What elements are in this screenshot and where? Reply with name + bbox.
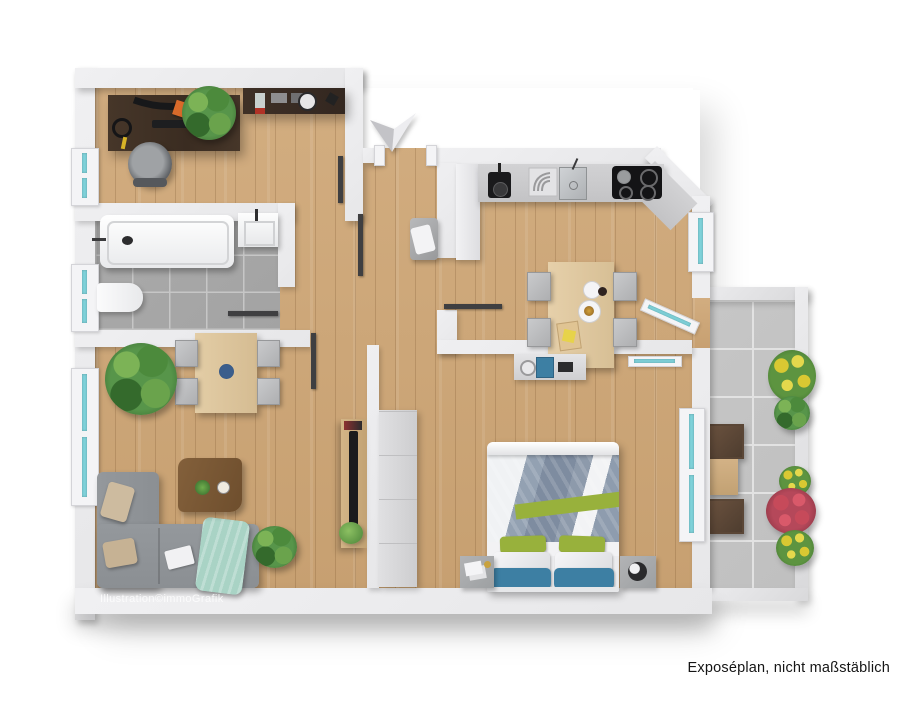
dining-cup — [598, 287, 607, 296]
bath-faucet — [92, 238, 106, 241]
tv-decor — [344, 421, 362, 430]
living-chair-2 — [175, 378, 198, 405]
watermark: Illustration©immoGrafik — [100, 593, 224, 605]
bed-headboard — [487, 587, 619, 592]
bedroom-door-leaf-flat — [628, 356, 682, 367]
balcony-chair-top — [706, 424, 744, 459]
sideboard-laptop — [558, 362, 573, 372]
wall-office-right — [345, 68, 363, 221]
balcony-rail-top — [700, 287, 808, 300]
bed-pillow-green-2 — [559, 535, 606, 554]
entrance-jamb-right — [426, 145, 437, 166]
dining-plate-2 — [578, 300, 601, 323]
office-chair-back — [133, 178, 167, 187]
kitchen-grill-handle — [498, 163, 501, 173]
living-chair-3 — [257, 340, 280, 367]
window-bedroom-glass — [689, 414, 694, 469]
kitchen-dishrack — [528, 167, 558, 197]
floorplan-canvas: Illustration©immoGrafik Exposéplan, nich… — [0, 0, 900, 701]
dining-napkin — [562, 329, 576, 343]
office-headphones — [112, 118, 132, 138]
office-shelf — [243, 88, 345, 114]
bathtub — [100, 215, 234, 268]
balcony-chair-bottom — [706, 499, 744, 534]
living-chair-4 — [257, 378, 280, 405]
nightstand-left — [460, 556, 494, 588]
wall-hall-kitchen-upper — [437, 163, 457, 258]
window-living-glass — [82, 374, 87, 431]
hall-chair-cloth — [410, 224, 436, 255]
balcony-flower-yellow-3 — [776, 530, 814, 566]
living-door-leaf — [311, 333, 316, 389]
dining-chair-1 — [527, 272, 551, 301]
wall-bathroom-right — [278, 203, 295, 287]
dining-chair-2 — [527, 318, 551, 347]
balcony-flowerpot-yellow — [768, 350, 816, 402]
coffee-table — [178, 458, 242, 512]
dining-chair-4 — [613, 318, 637, 347]
shelf-red-box — [255, 93, 265, 114]
kitchen-tall-cabinet — [456, 164, 480, 260]
kitchen-cooktop — [612, 166, 662, 199]
table-flowers — [219, 364, 234, 379]
sideboard-books — [536, 357, 554, 378]
shelf-decor — [325, 92, 339, 106]
wall-top-office — [75, 68, 363, 88]
bed-roll-top — [487, 442, 619, 455]
living-plant-large — [105, 343, 177, 415]
tv-screen — [349, 431, 358, 529]
window-office-glass — [82, 153, 87, 173]
balcony-flowerpot-red — [766, 488, 816, 534]
nightstand-papers — [464, 561, 483, 577]
caption: Exposéplan, nicht maßstäblich — [688, 660, 890, 676]
office-plant — [182, 86, 236, 140]
bath-sink-basin — [244, 221, 275, 246]
shelf-clock — [298, 92, 317, 111]
sideboard-tray — [520, 360, 536, 376]
nightstand-gold-dot — [484, 561, 491, 568]
window-bathroom-glass — [82, 270, 87, 294]
bath-sink-tap — [255, 209, 258, 221]
tv-plant — [339, 522, 363, 544]
shelf-books — [271, 93, 287, 103]
kitchen-sink — [559, 167, 587, 200]
dining-chair-3 — [613, 272, 637, 301]
dining-door-leaf — [444, 304, 502, 309]
window-bathroom-glass2 — [82, 299, 87, 323]
window-office-glass2 — [82, 178, 87, 198]
bed — [487, 442, 619, 592]
balcony-table — [708, 459, 738, 495]
hall-chair — [410, 218, 438, 260]
sofa-cushion-line — [158, 528, 160, 584]
bathtub-drain — [122, 236, 133, 245]
balcony-rail-bottom — [704, 588, 808, 601]
toilet — [97, 283, 143, 312]
coffee-table-plant — [195, 480, 210, 495]
hall-coat-rack — [358, 214, 363, 276]
wall-kitchen-top — [435, 148, 661, 164]
burner-4 — [640, 185, 656, 201]
bathroom-shelf — [228, 311, 278, 316]
sofa-pillow-beige-2 — [102, 537, 138, 568]
office-door-leaf — [338, 156, 343, 203]
living-plant-small — [252, 526, 297, 568]
nightstand-lamp — [628, 562, 647, 581]
bath-sink — [238, 213, 278, 247]
bed-pillow-blue-1 — [491, 568, 551, 589]
bedroom-sideboard — [514, 354, 586, 380]
burner-3 — [619, 186, 633, 200]
bed-pillow-green-1 — [500, 535, 547, 554]
entrance-arrow-icon — [368, 110, 418, 154]
sofa-blanket-mint — [195, 516, 251, 595]
window-living-glass2 — [82, 437, 87, 497]
wall-living-bedroom — [367, 345, 379, 588]
dining-food — [584, 306, 594, 316]
window-kitchen-glass — [698, 218, 703, 264]
kitchen-grill-pan — [493, 182, 508, 197]
burner-pan — [617, 170, 631, 184]
bed-pillow-blue-2 — [554, 568, 614, 589]
coffee-table-cup — [217, 481, 230, 494]
wardrobe — [379, 410, 417, 587]
bedroom-door-leaf-glass — [634, 359, 675, 363]
living-chair-1 — [175, 340, 198, 367]
kitchen-sink-drain — [569, 181, 578, 190]
kitchen-grill — [488, 172, 511, 198]
window-bedroom-glass2 — [689, 475, 694, 533]
balcony-plant-small — [774, 396, 810, 430]
nightstand-right — [620, 556, 656, 588]
